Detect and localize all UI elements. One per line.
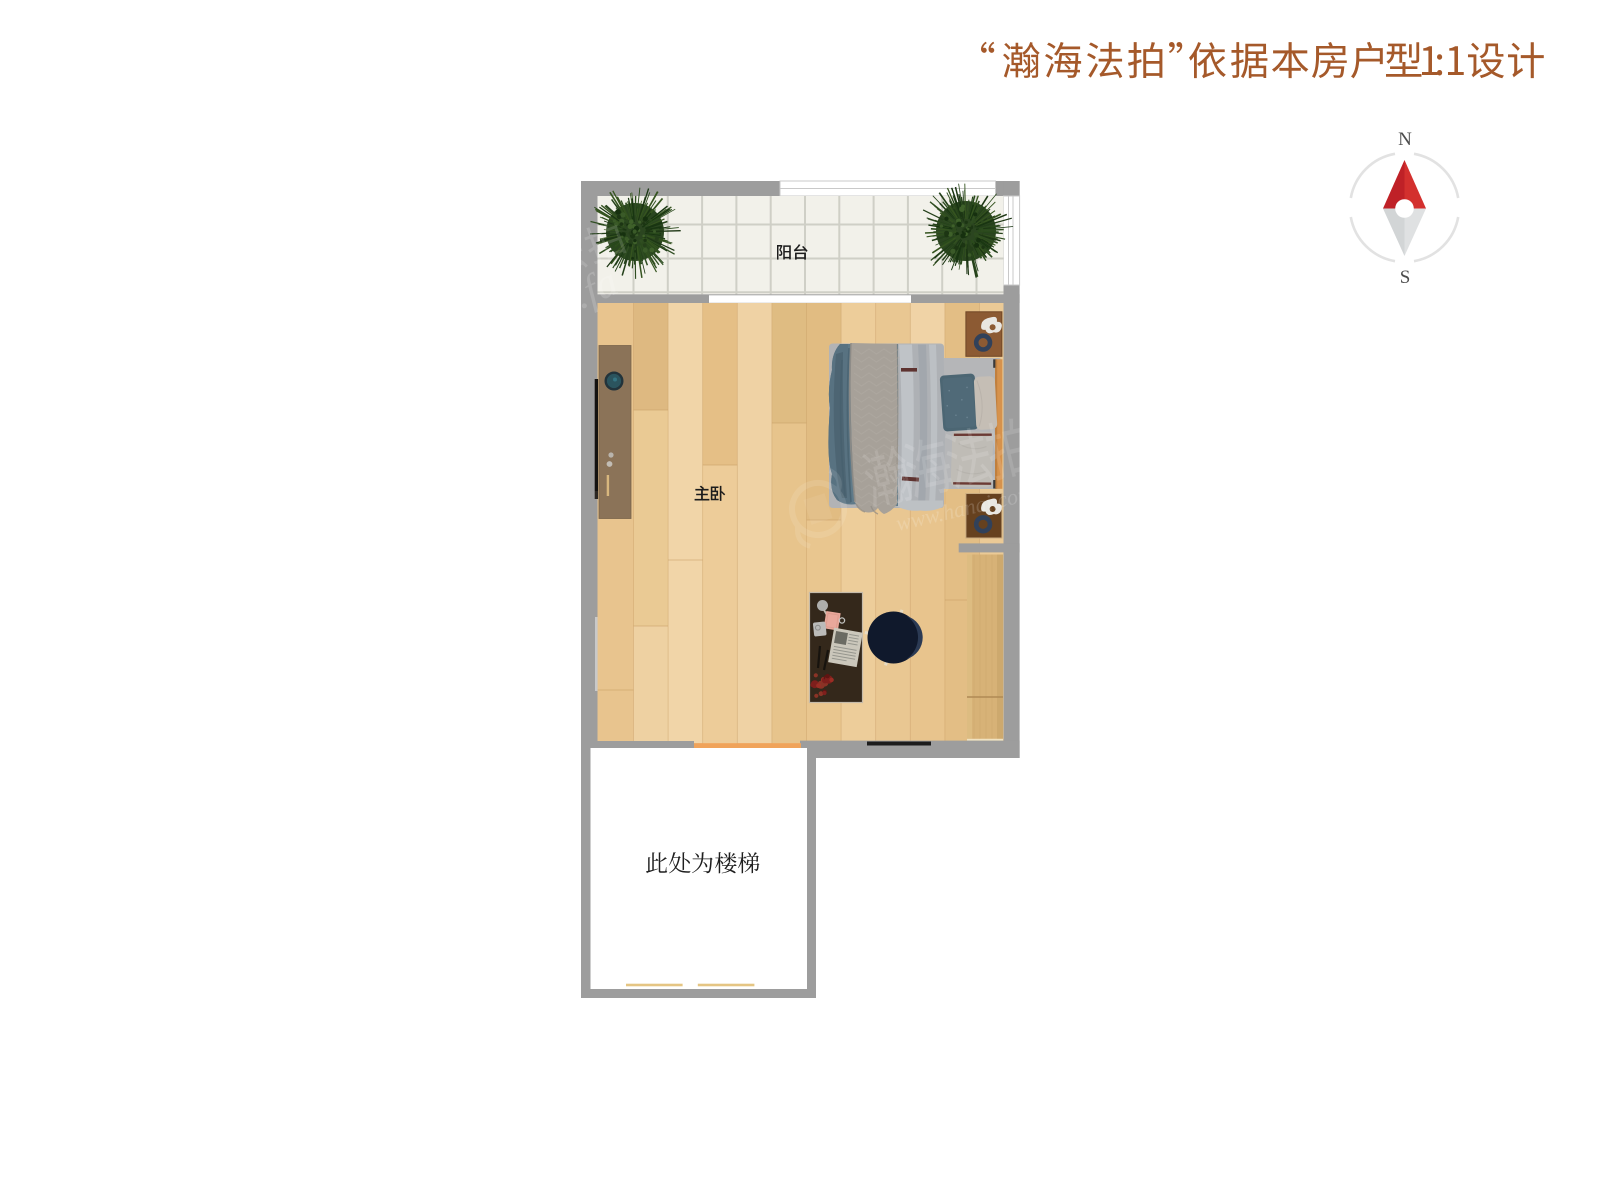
svg-text:N: N	[1398, 129, 1412, 150]
svg-text:S: S	[1400, 267, 1411, 288]
